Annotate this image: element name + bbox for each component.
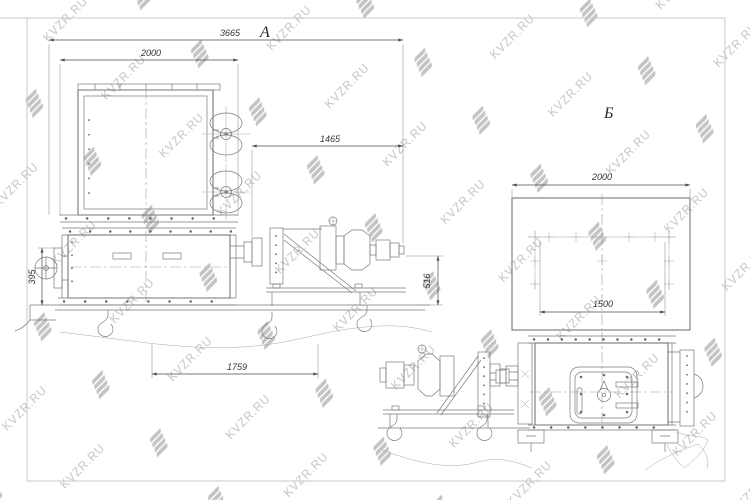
dimension-label: 395 <box>27 269 37 285</box>
dimension-label: 1465 <box>320 134 341 144</box>
drawing-sheet: KVZR.RU <box>0 0 750 500</box>
dimension-label: 2000 <box>140 48 161 58</box>
dimension-label: 1500 <box>593 299 613 309</box>
dimension-label: 3665 <box>220 28 241 38</box>
dimension-label: 1759 <box>227 362 247 372</box>
view-a-label: А <box>259 24 270 41</box>
dimension-label: 516 <box>422 273 432 288</box>
dimension-label: 2000 <box>591 172 612 182</box>
view-b-label: Б <box>603 105 614 122</box>
technical-drawing: KVZR.RU <box>0 0 750 500</box>
